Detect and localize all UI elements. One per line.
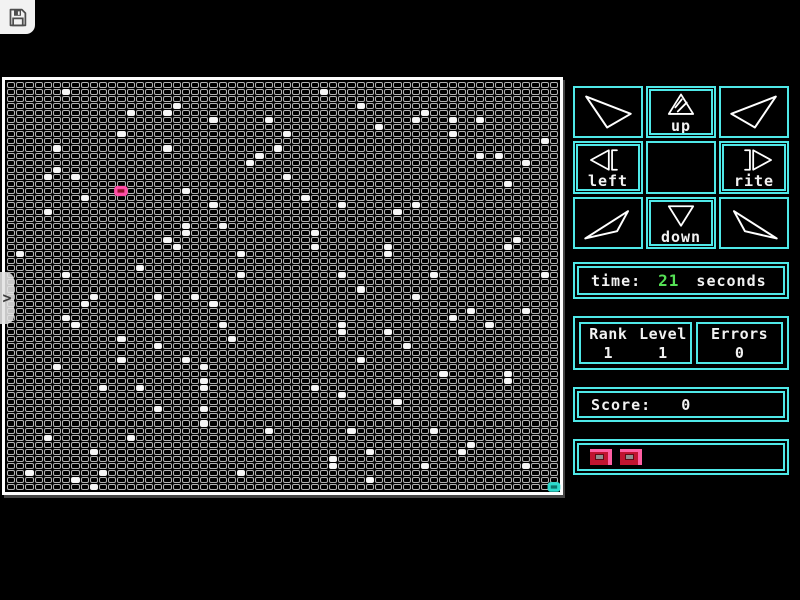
board-cell bbox=[81, 463, 89, 469]
board-cell bbox=[219, 449, 227, 455]
board-cell bbox=[191, 301, 199, 307]
board-cell bbox=[274, 174, 282, 180]
board-cell bbox=[458, 153, 466, 159]
board-cell bbox=[467, 138, 475, 144]
board-cell bbox=[219, 286, 227, 292]
board-cell bbox=[449, 272, 457, 278]
board-cell bbox=[292, 322, 300, 328]
board-cell bbox=[301, 456, 309, 462]
board-cell bbox=[449, 428, 457, 434]
board-cell bbox=[25, 399, 33, 405]
board-cell bbox=[228, 138, 236, 144]
board-cell bbox=[458, 442, 466, 448]
board-cell bbox=[292, 392, 300, 398]
board-cell bbox=[219, 131, 227, 137]
board-cell bbox=[366, 202, 374, 208]
board-cell bbox=[265, 237, 273, 243]
dirpad-up-right-button[interactable] bbox=[719, 86, 789, 138]
board-cell bbox=[467, 279, 475, 285]
board-cell bbox=[412, 223, 420, 229]
board-cell bbox=[219, 294, 227, 300]
board-cell bbox=[200, 336, 208, 342]
board-cell bbox=[292, 463, 300, 469]
board-cell bbox=[163, 82, 171, 88]
board-cell bbox=[200, 124, 208, 130]
board-cell bbox=[62, 117, 70, 123]
board-cell bbox=[541, 336, 549, 342]
board-cell bbox=[154, 265, 162, 271]
board-cell bbox=[458, 301, 466, 307]
board-cell bbox=[246, 435, 254, 441]
board-cell bbox=[25, 315, 33, 321]
board-cell bbox=[53, 258, 61, 264]
board-cell bbox=[200, 153, 208, 159]
board-cell bbox=[136, 237, 144, 243]
board-cell bbox=[430, 258, 438, 264]
board-cell bbox=[145, 343, 153, 349]
board-cell bbox=[274, 385, 282, 391]
board-cell bbox=[154, 188, 162, 194]
board-cell bbox=[136, 153, 144, 159]
dirpad-center-button bbox=[646, 141, 716, 193]
board-cell bbox=[237, 413, 245, 419]
board-cell bbox=[320, 350, 328, 356]
board-cell bbox=[35, 329, 43, 335]
dot-cell bbox=[541, 272, 549, 278]
board-cell bbox=[347, 420, 355, 426]
board-cell bbox=[228, 315, 236, 321]
board-cell bbox=[329, 138, 337, 144]
board-cell bbox=[403, 272, 411, 278]
board-cell bbox=[173, 308, 181, 314]
lives-panel bbox=[573, 439, 789, 475]
board-cell bbox=[504, 124, 512, 130]
board-cell bbox=[53, 188, 61, 194]
board-cell bbox=[53, 406, 61, 412]
board-cell bbox=[62, 428, 70, 434]
board-cell bbox=[357, 477, 365, 483]
board-cell bbox=[90, 378, 98, 384]
board-cell bbox=[338, 174, 346, 180]
board-cell bbox=[430, 463, 438, 469]
board-cell bbox=[283, 420, 291, 426]
board-cell bbox=[154, 392, 162, 398]
board-cell bbox=[541, 378, 549, 384]
board-cell bbox=[550, 343, 558, 349]
board-cell bbox=[550, 244, 558, 250]
board-cell bbox=[430, 153, 438, 159]
board-cell bbox=[25, 286, 33, 292]
dot-cell bbox=[154, 294, 162, 300]
board-cell bbox=[476, 145, 484, 151]
board-cell bbox=[522, 428, 530, 434]
board-cell bbox=[173, 96, 181, 102]
board-cell bbox=[108, 406, 116, 412]
board-cell bbox=[485, 301, 493, 307]
board-cell bbox=[136, 174, 144, 180]
board-cell bbox=[329, 244, 337, 250]
board-cell bbox=[145, 406, 153, 412]
board-cell bbox=[237, 89, 245, 95]
board-cell bbox=[531, 301, 539, 307]
board-cell bbox=[458, 435, 466, 441]
board-cell bbox=[99, 131, 107, 137]
board-cell bbox=[182, 265, 190, 271]
board-cell bbox=[163, 174, 171, 180]
board-cell bbox=[136, 96, 144, 102]
board-cell bbox=[219, 329, 227, 335]
board-cell bbox=[283, 470, 291, 476]
dirpad-right-button[interactable]: rite bbox=[719, 141, 789, 193]
board-cell bbox=[7, 484, 15, 490]
board-cell bbox=[219, 160, 227, 166]
board-cell bbox=[485, 477, 493, 483]
board-cell bbox=[504, 279, 512, 285]
board-cell bbox=[90, 131, 98, 137]
board-cell bbox=[366, 237, 374, 243]
board-cell bbox=[127, 258, 135, 264]
board-cell bbox=[366, 336, 374, 342]
board-cell bbox=[393, 153, 401, 159]
board-cell bbox=[513, 145, 521, 151]
board-cell bbox=[495, 188, 503, 194]
board-cell bbox=[16, 406, 24, 412]
board-cell bbox=[173, 216, 181, 222]
board-cell bbox=[504, 286, 512, 292]
board-cell bbox=[476, 272, 484, 278]
board-cell bbox=[182, 442, 190, 448]
board-cell bbox=[117, 124, 125, 130]
board-cell bbox=[439, 399, 447, 405]
board-cell bbox=[44, 103, 52, 109]
board-cell bbox=[338, 315, 346, 321]
board-cell bbox=[163, 392, 171, 398]
board-cell bbox=[44, 272, 52, 278]
board-cell bbox=[173, 378, 181, 384]
board-cell bbox=[292, 188, 300, 194]
board-cell bbox=[173, 110, 181, 116]
board-cell bbox=[292, 131, 300, 137]
board-cell bbox=[25, 110, 33, 116]
board-cell bbox=[173, 428, 181, 434]
board-cell bbox=[274, 279, 282, 285]
board-cell bbox=[219, 195, 227, 201]
board-cell bbox=[458, 209, 466, 215]
board-cell bbox=[219, 364, 227, 370]
board-cell bbox=[99, 209, 107, 215]
board-cell bbox=[531, 202, 539, 208]
board-cell bbox=[16, 96, 24, 102]
board-cell bbox=[357, 216, 365, 222]
board-cell bbox=[228, 244, 236, 250]
board-cell bbox=[35, 484, 43, 490]
board-cell bbox=[173, 145, 181, 151]
board-cell bbox=[81, 124, 89, 130]
board-cell bbox=[228, 357, 236, 363]
board-cell bbox=[163, 89, 171, 95]
board-cell bbox=[495, 350, 503, 356]
board-cell bbox=[504, 294, 512, 300]
board-cell bbox=[255, 322, 263, 328]
board-cell bbox=[228, 237, 236, 243]
board-cell bbox=[550, 442, 558, 448]
board-cell bbox=[531, 463, 539, 469]
board-cell bbox=[108, 244, 116, 250]
board-cell bbox=[513, 230, 521, 236]
board-cell bbox=[320, 456, 328, 462]
board-cell bbox=[541, 294, 549, 300]
board-cell bbox=[127, 279, 135, 285]
board-cell bbox=[449, 399, 457, 405]
board-cell bbox=[467, 209, 475, 215]
board-cell bbox=[550, 406, 558, 412]
board-cell bbox=[237, 195, 245, 201]
board-cell bbox=[209, 435, 217, 441]
board-cell bbox=[182, 456, 190, 462]
board-cell bbox=[301, 357, 309, 363]
dirpad-down-right-button[interactable] bbox=[719, 197, 789, 249]
board-cell bbox=[219, 153, 227, 159]
board-cell bbox=[550, 456, 558, 462]
dirpad-up-left-button[interactable] bbox=[573, 86, 643, 138]
board-cell bbox=[191, 153, 199, 159]
board-cell bbox=[145, 103, 153, 109]
rank-errors-panel: Rank Level 1 1 Errors 0 bbox=[573, 316, 789, 370]
board-cell bbox=[495, 237, 503, 243]
board-cell bbox=[191, 364, 199, 370]
board-cell bbox=[439, 181, 447, 187]
board-cell bbox=[476, 413, 484, 419]
board-cell bbox=[16, 145, 24, 151]
board-cell bbox=[329, 160, 337, 166]
board-cell bbox=[504, 96, 512, 102]
board-cell bbox=[421, 167, 429, 173]
board-cell bbox=[154, 350, 162, 356]
board-cell bbox=[81, 89, 89, 95]
dot-cell bbox=[200, 406, 208, 412]
board-cell bbox=[154, 244, 162, 250]
board-cell bbox=[173, 371, 181, 377]
board-cell bbox=[219, 350, 227, 356]
board-cell bbox=[393, 110, 401, 116]
board-cell bbox=[154, 477, 162, 483]
board-cell bbox=[531, 286, 539, 292]
board-cell bbox=[541, 153, 549, 159]
board-cell bbox=[522, 413, 530, 419]
board-cell bbox=[200, 315, 208, 321]
board-cell bbox=[384, 230, 392, 236]
board-cell bbox=[127, 103, 135, 109]
board-cell bbox=[62, 110, 70, 116]
board-cell bbox=[338, 449, 346, 455]
board-cell bbox=[219, 428, 227, 434]
board-cell bbox=[320, 131, 328, 137]
board-cell bbox=[320, 463, 328, 469]
dot-cell bbox=[504, 378, 512, 384]
board-cell bbox=[485, 428, 493, 434]
board-cell bbox=[25, 188, 33, 194]
board-cell bbox=[265, 272, 273, 278]
board-cell bbox=[246, 251, 254, 257]
board-cell bbox=[209, 223, 217, 229]
board-cell bbox=[485, 484, 493, 490]
board-cell bbox=[71, 449, 79, 455]
board-cell bbox=[44, 188, 52, 194]
dirpad-down-button[interactable]: down bbox=[646, 197, 716, 249]
board-cell bbox=[467, 329, 475, 335]
board-cell bbox=[347, 89, 355, 95]
board-cell bbox=[347, 385, 355, 391]
board-cell bbox=[255, 364, 263, 370]
board-cell bbox=[357, 153, 365, 159]
board-cell bbox=[62, 392, 70, 398]
board-cell bbox=[99, 110, 107, 116]
board-cell bbox=[513, 188, 521, 194]
board-cell bbox=[265, 216, 273, 222]
save-button[interactable] bbox=[0, 0, 35, 34]
board-cell bbox=[504, 160, 512, 166]
board-cell bbox=[375, 258, 383, 264]
dirpad-up-button[interactable]: up bbox=[646, 86, 716, 138]
board-cell bbox=[219, 399, 227, 405]
board-cell bbox=[366, 124, 374, 130]
board-cell bbox=[145, 357, 153, 363]
board-cell bbox=[44, 265, 52, 271]
board-cell bbox=[531, 110, 539, 116]
board-cell bbox=[62, 378, 70, 384]
board-cell bbox=[430, 477, 438, 483]
board-cell bbox=[127, 167, 135, 173]
board-cell bbox=[283, 153, 291, 159]
board-cell bbox=[485, 420, 493, 426]
board-cell bbox=[219, 406, 227, 412]
board-cell bbox=[16, 124, 24, 130]
board-cell bbox=[504, 167, 512, 173]
board-cell bbox=[320, 420, 328, 426]
board-cell bbox=[191, 117, 199, 123]
board-cell bbox=[209, 357, 217, 363]
board-cell bbox=[25, 301, 33, 307]
board-cell bbox=[255, 195, 263, 201]
board-cell bbox=[467, 399, 475, 405]
board-cell bbox=[347, 463, 355, 469]
board-cell bbox=[403, 449, 411, 455]
board-cell bbox=[495, 371, 503, 377]
board-cell bbox=[209, 103, 217, 109]
board-cell bbox=[476, 181, 484, 187]
board-cell bbox=[265, 470, 273, 476]
board-cell bbox=[513, 181, 521, 187]
board-cell bbox=[347, 378, 355, 384]
board-cell bbox=[467, 117, 475, 123]
board-cell bbox=[366, 138, 374, 144]
board-cell bbox=[145, 378, 153, 384]
board-cell bbox=[274, 322, 282, 328]
board-cell bbox=[182, 420, 190, 426]
board-cell bbox=[35, 456, 43, 462]
board-cell bbox=[476, 230, 484, 236]
board-cell bbox=[7, 442, 15, 448]
board-cell bbox=[449, 160, 457, 166]
board-cell bbox=[191, 420, 199, 426]
dot-cell bbox=[384, 329, 392, 335]
board-cell bbox=[191, 160, 199, 166]
board-cell bbox=[292, 378, 300, 384]
board-cell bbox=[25, 350, 33, 356]
board-cell bbox=[127, 145, 135, 151]
board-cell bbox=[127, 315, 135, 321]
board-cell bbox=[403, 350, 411, 356]
board-cell bbox=[384, 463, 392, 469]
dot-cell bbox=[504, 181, 512, 187]
board-cell bbox=[237, 124, 245, 130]
board-cell bbox=[200, 477, 208, 483]
board-cell bbox=[522, 96, 530, 102]
board-cell bbox=[347, 209, 355, 215]
board-cell bbox=[421, 195, 429, 201]
board-cell bbox=[311, 371, 319, 377]
board-cell bbox=[163, 435, 171, 441]
board-cell bbox=[182, 301, 190, 307]
board-cell bbox=[7, 251, 15, 257]
board-cell bbox=[117, 301, 125, 307]
board-cell bbox=[449, 435, 457, 441]
board-cell bbox=[44, 463, 52, 469]
board-cell bbox=[522, 477, 530, 483]
board-cell bbox=[90, 470, 98, 476]
board-cell bbox=[173, 89, 181, 95]
board-cell bbox=[90, 160, 98, 166]
board-cell bbox=[237, 216, 245, 222]
board-cell bbox=[311, 322, 319, 328]
board-cell bbox=[531, 82, 539, 88]
board-cell bbox=[412, 470, 420, 476]
board-cell bbox=[182, 153, 190, 159]
board-cell bbox=[16, 371, 24, 377]
board-cell bbox=[375, 265, 383, 271]
board-cell bbox=[458, 350, 466, 356]
board-cell bbox=[35, 385, 43, 391]
dot-cell bbox=[338, 392, 346, 398]
board-cell bbox=[495, 406, 503, 412]
dirpad-left-button[interactable]: left bbox=[573, 141, 643, 193]
board-cell bbox=[191, 195, 199, 201]
board-cell bbox=[458, 181, 466, 187]
board-cell bbox=[283, 442, 291, 448]
board-cell bbox=[449, 124, 457, 130]
board-cell bbox=[550, 329, 558, 335]
board-cell bbox=[246, 385, 254, 391]
board-cell bbox=[320, 244, 328, 250]
board-cell bbox=[458, 279, 466, 285]
board-cell bbox=[173, 315, 181, 321]
board-cell bbox=[228, 463, 236, 469]
drawer-expand-handle[interactable]: > bbox=[0, 272, 14, 324]
board-cell bbox=[35, 237, 43, 243]
dot-cell bbox=[127, 435, 135, 441]
board-cell bbox=[163, 117, 171, 123]
board-cell bbox=[200, 160, 208, 166]
board-cell bbox=[338, 145, 346, 151]
dirpad-down-left-button[interactable] bbox=[573, 197, 643, 249]
board-cell bbox=[550, 399, 558, 405]
board-cell bbox=[439, 336, 447, 342]
board-cell bbox=[403, 89, 411, 95]
board-cell bbox=[375, 301, 383, 307]
board-cell bbox=[44, 96, 52, 102]
board-cell bbox=[274, 230, 282, 236]
board-cell bbox=[301, 301, 309, 307]
